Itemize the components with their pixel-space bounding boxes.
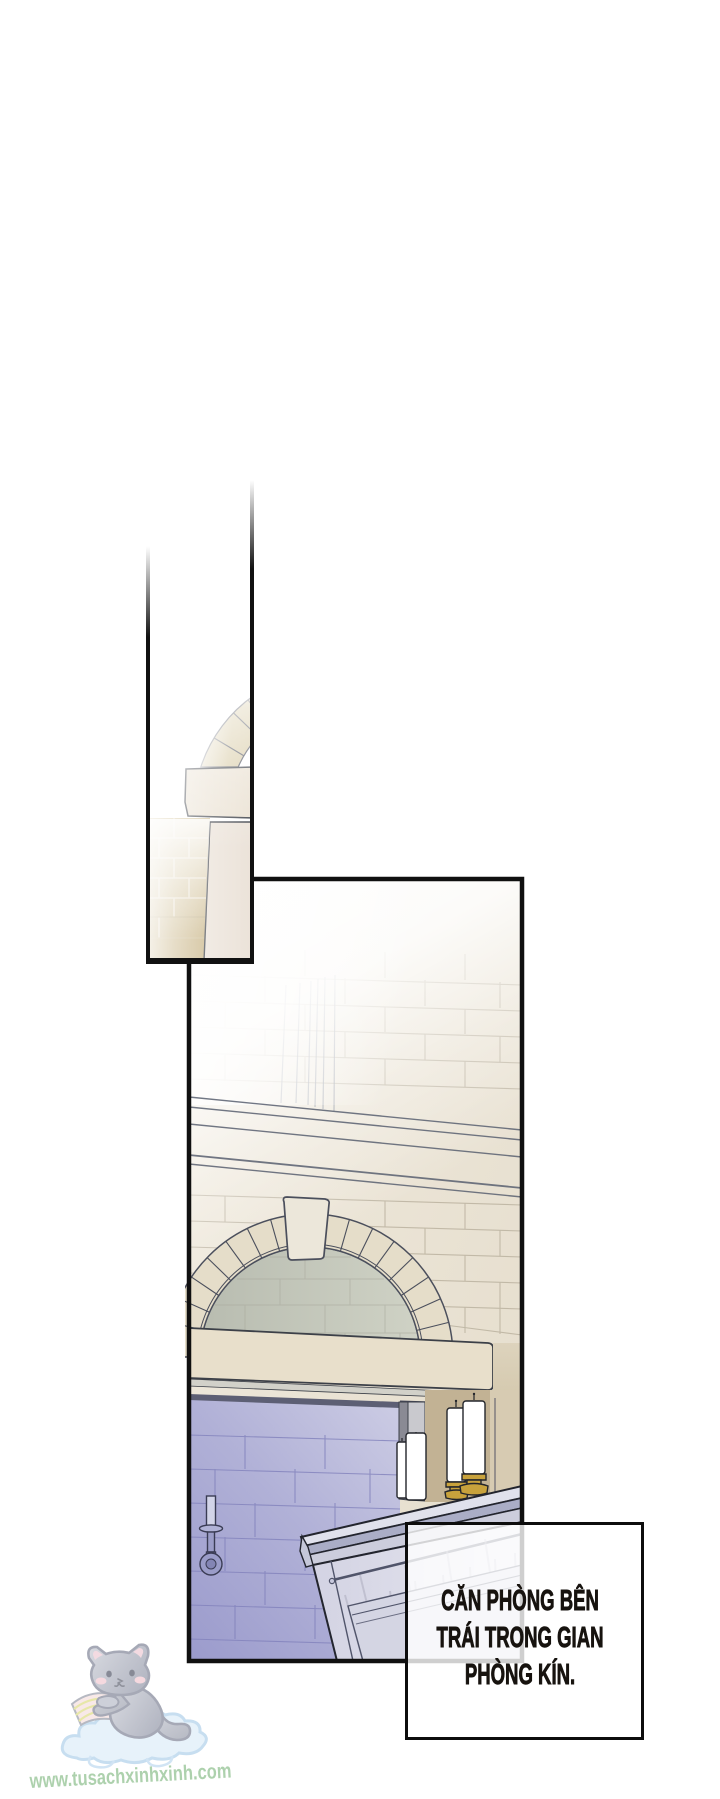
svg-text:www.tusachxinhxinh.com: www.tusachxinhxinh.com: [28, 1759, 232, 1793]
